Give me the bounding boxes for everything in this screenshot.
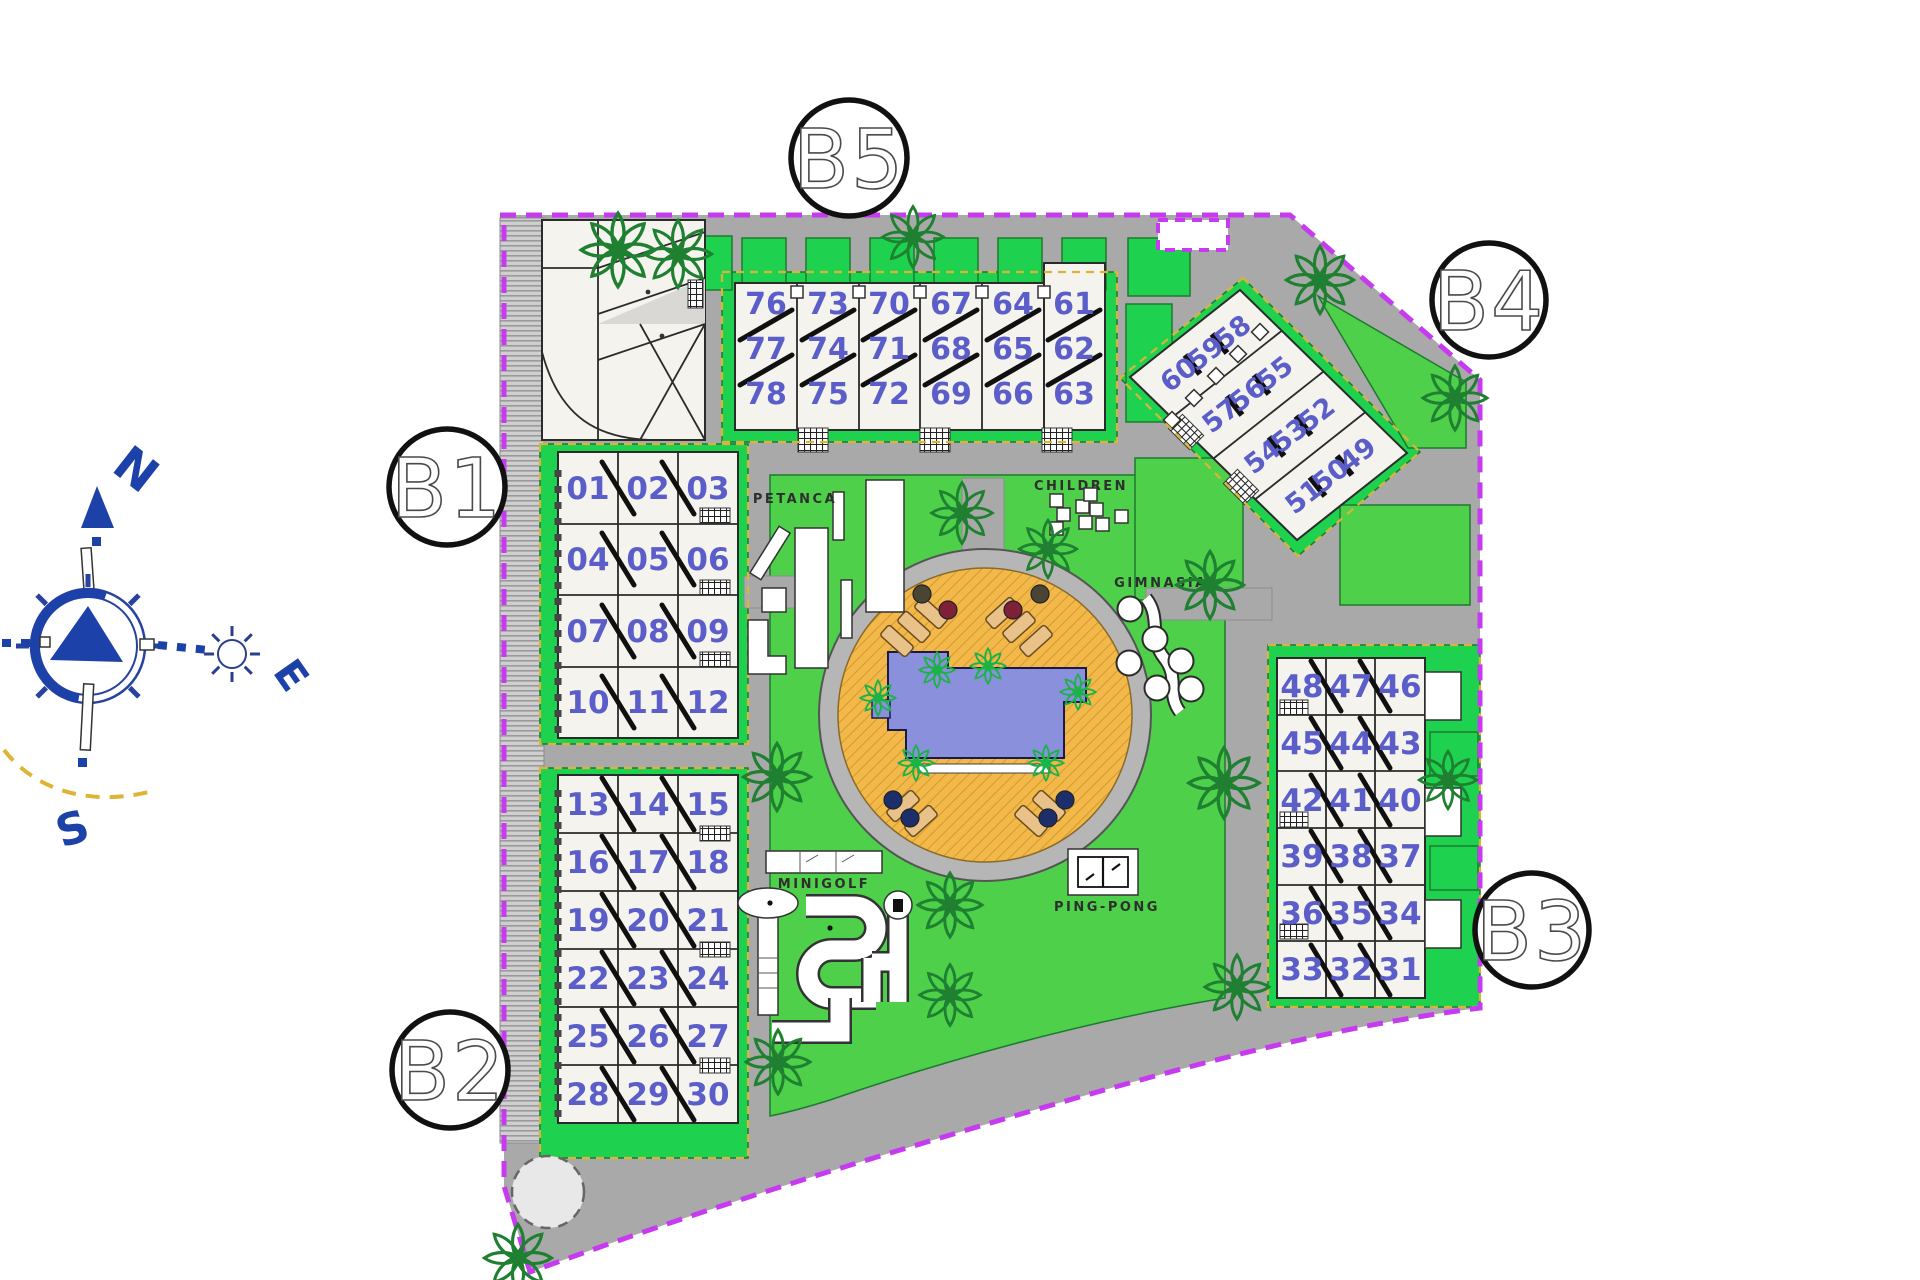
unit-number: 65	[992, 332, 1034, 367]
unit-number: 11	[626, 685, 669, 721]
unit-number: 03	[686, 471, 729, 507]
unit-number: 24	[686, 961, 729, 997]
unit-number: 38	[1329, 839, 1372, 875]
unit-number: 31	[1378, 952, 1421, 988]
unit-number: 62	[1053, 332, 1095, 367]
unit-number: 17	[626, 845, 669, 881]
unit-number: 39	[1280, 839, 1323, 875]
unit-number: 63	[1053, 377, 1095, 412]
building-b3: 48 47 46 45 44 43 42 41 40 39 38 37 36 3…	[1277, 658, 1461, 998]
b2-label: B2	[394, 1025, 506, 1120]
unit-number: 71	[868, 332, 910, 367]
site-plan-canvas: 76 73 70 67 64 61 77 74 71 68 65 62 78 7…	[0, 0, 1920, 1280]
unit-number: 41	[1329, 783, 1372, 819]
unit-number: 43	[1378, 726, 1421, 762]
unit-number: 26	[626, 1019, 669, 1055]
unit-number: 35	[1329, 896, 1372, 932]
b1-label: B1	[391, 442, 503, 537]
stairs-icon	[700, 580, 730, 595]
unit-number: 76	[745, 287, 787, 322]
unit-number: 61	[1053, 287, 1095, 322]
unit-number: 14	[626, 787, 669, 823]
stairs-icon	[700, 942, 730, 957]
unit-number: 48	[1280, 669, 1323, 705]
unit-number: 30	[686, 1077, 729, 1113]
unit-number: 22	[566, 961, 609, 997]
unit-number: 75	[807, 377, 849, 412]
unit-number: 19	[566, 903, 609, 939]
b4-label: B4	[1433, 255, 1545, 350]
ping-pong-label: PING-PONG	[1054, 900, 1160, 915]
building-b1: 01 02 03 04 05 06 07 08 09 10 11 12	[558, 452, 738, 738]
unit-number: 27	[686, 1019, 729, 1055]
stairs-icon	[700, 508, 730, 523]
stairs-icon	[700, 826, 730, 841]
west-sidewalk-strip	[500, 218, 544, 1143]
site-plan-drawing: 76 73 70 67 64 61 77 74 71 68 65 62 78 7…	[0, 0, 1920, 1280]
unit-number: 16	[566, 845, 609, 881]
petanca-label: PETANCA	[753, 492, 837, 507]
children-label: CHILDREN	[1034, 479, 1128, 494]
unit-number: 23	[626, 961, 669, 997]
unit-number: 29	[626, 1077, 669, 1113]
compass-rose: N E S	[2, 435, 317, 858]
compass-yellow-arc	[4, 750, 156, 797]
unit-number: 44	[1329, 726, 1372, 762]
stairs-icon	[700, 652, 730, 667]
unit-number: 67	[930, 287, 972, 322]
b3-label: B3	[1476, 885, 1588, 980]
unit-number: 70	[868, 287, 910, 322]
unit-number: 18	[686, 845, 729, 881]
unit-number: 05	[626, 542, 669, 578]
unit-number: 45	[1280, 726, 1323, 762]
unit-number: 25	[566, 1019, 609, 1055]
dashed-circle-marker	[512, 1156, 584, 1228]
unit-number: 21	[686, 903, 729, 939]
unit-number: 73	[807, 287, 849, 322]
compass-east-label: E	[264, 651, 317, 700]
unit-number: 66	[992, 377, 1034, 412]
minigolf-label: MINIGOLF	[778, 877, 870, 892]
unit-number: 13	[566, 787, 609, 823]
stairs-icon	[798, 428, 828, 452]
unit-number: 06	[686, 542, 729, 578]
unit-number: 15	[686, 787, 729, 823]
unit-number: 28	[566, 1077, 609, 1113]
b5-label: B5	[793, 113, 905, 208]
unit-number: 02	[626, 471, 669, 507]
unit-number: 20	[626, 903, 669, 939]
unit-number: 12	[686, 685, 729, 721]
unit-number: 72	[868, 377, 910, 412]
boundary-gate-rect	[1158, 220, 1228, 250]
stairs-icon	[1042, 428, 1072, 452]
compass-north-label: N	[103, 435, 169, 504]
stairs-icon	[688, 280, 703, 308]
unit-number: 47	[1329, 669, 1372, 705]
unit-number: 08	[626, 614, 669, 650]
unit-number: 64	[992, 287, 1034, 322]
unit-number: 37	[1378, 839, 1421, 875]
unit-number: 46	[1378, 669, 1421, 705]
unit-number: 32	[1329, 952, 1372, 988]
unit-number: 33	[1280, 952, 1323, 988]
unit-number: 78	[745, 377, 787, 412]
stairs-icon	[700, 1058, 730, 1073]
unit-number: 07	[566, 614, 609, 650]
unit-number: 01	[566, 471, 609, 507]
unit-number: 42	[1280, 783, 1323, 819]
unit-number: 40	[1378, 783, 1421, 819]
unit-number: 69	[930, 377, 972, 412]
unit-number: 04	[566, 542, 609, 578]
unit-number: 77	[745, 332, 787, 367]
building-b5: 76 73 70 67 64 61 77 74 71 68 65 62 78 7…	[735, 263, 1105, 452]
unit-number: 10	[566, 685, 609, 721]
unit-number: 09	[686, 614, 729, 650]
building-b2: 13 14 15 16 17 18 19 20 21 22 23 24 25 2…	[558, 775, 738, 1123]
compass-sun-icon	[218, 640, 246, 668]
unit-number: 34	[1378, 896, 1421, 932]
compass-south-label: S	[50, 800, 96, 858]
unit-number: 68	[930, 332, 972, 367]
unit-number: 36	[1280, 896, 1323, 932]
stairs-icon	[920, 428, 950, 452]
unit-number: 74	[807, 332, 849, 367]
compass-north-arrow-icon	[81, 486, 114, 528]
